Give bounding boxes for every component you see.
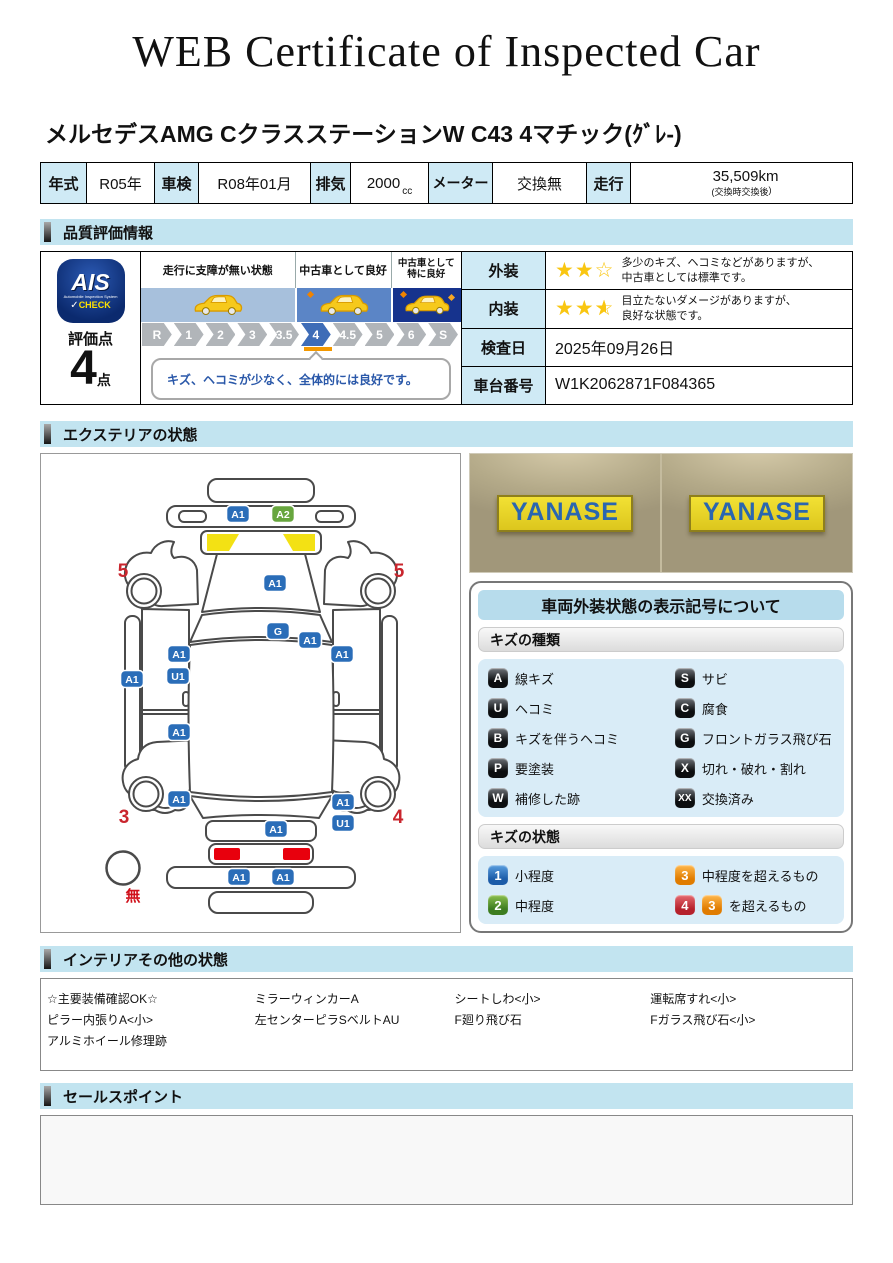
interior-condition-item: 運転席すれ<小> bbox=[650, 990, 846, 1007]
panel-number: 3 bbox=[119, 807, 130, 828]
legend-kind-label: 腐食 bbox=[702, 699, 728, 718]
exterior-rating: ★★☆ 多少のキズ、ヘコミなどがありますが、 中古車としては標準です。 bbox=[546, 252, 852, 289]
legend-kind-label: 切れ・破れ・割れ bbox=[702, 759, 806, 778]
legend-kind-label: サビ bbox=[702, 669, 728, 688]
legend-kinds-grid: A線キズSサビUヘコミC腐食Bキズを伴うヘコミGフロントガラス飛び石P要塗装X切… bbox=[478, 659, 844, 817]
legend-kind-item: P要塗装 bbox=[488, 758, 675, 778]
ais-check-label: ✓CHECK bbox=[70, 300, 110, 311]
legend-kind-item: Bキズを伴うヘコミ bbox=[488, 728, 675, 748]
svg-text:A1: A1 bbox=[303, 635, 317, 647]
ais-logo: AIS Automobile Inspection System ✓CHECK bbox=[57, 259, 125, 323]
svg-text:A2: A2 bbox=[276, 509, 290, 521]
damage-code-badge: B bbox=[488, 728, 508, 748]
ais-check-text: CHECK bbox=[79, 300, 111, 310]
svg-text:U1: U1 bbox=[171, 671, 185, 683]
table-row: 検査日 2025年09月26日 bbox=[462, 329, 852, 367]
legend-kinds-header: キズの種類 bbox=[478, 627, 844, 652]
photo-right: YANASE bbox=[660, 454, 852, 572]
legend-kind-item: Gフロントガラス飛び石 bbox=[675, 728, 834, 748]
photo-left: YANASE bbox=[470, 454, 660, 572]
svg-text:A1: A1 bbox=[269, 824, 283, 836]
legend-kind-item: Sサビ bbox=[675, 668, 834, 688]
zone-label-2: 中古車として良好 bbox=[295, 252, 391, 288]
car-icon bbox=[403, 294, 451, 316]
band-zone-2 bbox=[295, 288, 391, 322]
exterior-body: A1A2A1GA1A1U1A1A1A1A1A1U1A1A1A15534無 YAN… bbox=[40, 453, 853, 933]
interior-condition-item: ミラーウィンカーA bbox=[255, 990, 455, 1007]
legend-state-label: 小程度 bbox=[515, 866, 554, 885]
certificate-page: WEB Certificate of Inspected Car メルセデスAM… bbox=[0, 0, 893, 1263]
panel-number: 4 bbox=[393, 807, 404, 828]
interior-text-line1: 目立たないダメージがありますが、 bbox=[621, 295, 796, 307]
vin-label: 車台番号 bbox=[462, 367, 546, 404]
table-row: 車台番号 W1K2062871F084365 bbox=[462, 367, 852, 404]
damage-mark-A1: A1 bbox=[264, 575, 287, 592]
svg-text:A1: A1 bbox=[172, 794, 186, 806]
damage-mark-A1: A1 bbox=[121, 671, 144, 688]
legend-kind-label: フロントガラス飛び石 bbox=[702, 729, 832, 748]
scale-step-3: 3 bbox=[237, 323, 267, 346]
legend-kind-label: 要塗装 bbox=[515, 759, 554, 778]
legend-title: 車両外装状態の表示記号について bbox=[478, 590, 844, 620]
exterior-text-line1: 多少のキズ、ヘコミなどがありますが、 bbox=[621, 257, 819, 269]
mileage-note-open: (交換時 bbox=[711, 185, 741, 198]
svg-text:A1: A1 bbox=[335, 649, 349, 661]
section-header-exterior: エクステリアの状態 bbox=[40, 421, 853, 447]
band-zone-1 bbox=[141, 288, 295, 322]
interior-condition-item: シートしわ<小> bbox=[454, 990, 650, 1007]
damage-mark-A1: A1 bbox=[299, 632, 322, 649]
interior-condition-item: 左センターピラSベルトAU bbox=[255, 1011, 455, 1028]
zone-label-3: 中古車として特に良好 bbox=[391, 252, 461, 288]
exterior-rating-text: 多少のキズ、ヘコミなどがありますが、 中古車としては標準です。 bbox=[621, 256, 819, 286]
legend-kind-item: A線キズ bbox=[488, 668, 675, 688]
interior-text-line2: 良好な状態です。 bbox=[621, 310, 708, 322]
interior-stars: ★★☆★ bbox=[555, 296, 614, 321]
section-header-sales: セールスポイント bbox=[40, 1083, 853, 1109]
legend-kind-item: W補修した跡 bbox=[488, 788, 675, 808]
legend-state-item: 2中程度 bbox=[488, 895, 675, 915]
inspection-date-value: 2025年09月26日 bbox=[546, 329, 852, 366]
mileage-note-mid: 交換後 bbox=[741, 185, 768, 198]
svg-text:A1: A1 bbox=[268, 578, 282, 590]
legend-kind-item: XX交換済み bbox=[675, 788, 834, 808]
car-icon bbox=[192, 293, 244, 317]
svg-text:A1: A1 bbox=[276, 872, 290, 884]
legend-kind-item: Uヘコミ bbox=[488, 698, 675, 718]
inspection-date-label: 検査日 bbox=[462, 329, 546, 366]
svg-text:A1: A1 bbox=[336, 797, 350, 809]
damage-code-badge: P bbox=[488, 758, 508, 778]
zone-labels: 走行に支障が無い状態 中古車として良好 中古車として特に良好 bbox=[141, 252, 461, 288]
severity-badge: 3 bbox=[702, 895, 722, 915]
displacement-number: 2000 bbox=[367, 175, 400, 192]
spare-tire-label: 無 bbox=[125, 887, 140, 905]
legend-states-header: キズの状態 bbox=[478, 824, 844, 849]
scale-step-6: 6 bbox=[396, 323, 426, 346]
legend-kind-label: 交換済み bbox=[702, 789, 754, 808]
damage-mark-A1: A1 bbox=[168, 646, 191, 663]
car-icon bbox=[318, 293, 370, 317]
scale-step-4.5: 4.5 bbox=[333, 323, 363, 346]
mileage-note-close: ) bbox=[769, 185, 772, 198]
svg-text:A1: A1 bbox=[125, 674, 139, 686]
damage-mark-A1: A1 bbox=[272, 869, 295, 886]
svg-text:A1: A1 bbox=[172, 727, 186, 739]
severity-badge: 4 bbox=[675, 895, 695, 915]
table-row: 内装 ★★☆★ 目立たないダメージがありますが、 良好な状態です。 bbox=[462, 290, 852, 328]
legend-state-item: 43を超えるもの bbox=[675, 895, 834, 915]
spec-table: 年式 R05年 車検 R08年01月 排気 2000 cc メーター 交換無 走… bbox=[40, 162, 853, 204]
legend-state-label: 中程度を超えるもの bbox=[702, 866, 819, 885]
evaluation-comment: キズ、ヘコミが少なく、全体的には良好です。 bbox=[151, 358, 451, 400]
damage-code-badge: G bbox=[675, 728, 695, 748]
interior-condition-item: F廻り飛び石 bbox=[454, 1011, 650, 1028]
legend-state-label: 中程度 bbox=[515, 896, 554, 915]
rating-scale-cell: 走行に支障が無い状態 中古車として良好 中古車として特に良好 R1233.544 bbox=[141, 252, 462, 404]
spec-displacement-value: 2000 cc bbox=[351, 163, 429, 203]
damage-mark-G: G bbox=[267, 623, 290, 640]
scale-step-S: S bbox=[428, 323, 458, 346]
car-damage-diagram: A1A2A1GA1A1U1A1A1A1A1A1U1A1A1A15534無 bbox=[40, 453, 461, 933]
damage-code-badge: X bbox=[675, 758, 695, 778]
damage-code-badge: S bbox=[675, 668, 695, 688]
spec-year-label: 年式 bbox=[41, 163, 87, 203]
panel-number: 5 bbox=[394, 561, 405, 582]
damage-code-badge: A bbox=[488, 668, 508, 688]
legend-state-item: 1小程度 bbox=[488, 865, 675, 885]
sales-point-box bbox=[40, 1115, 853, 1205]
interior-label: 内装 bbox=[462, 290, 546, 327]
spec-year-value: R05年 bbox=[87, 163, 155, 203]
spec-mileage-label: 走行 bbox=[587, 163, 631, 203]
vin-value: W1K2062871F084365 bbox=[546, 367, 852, 404]
band-zone-3 bbox=[391, 288, 461, 322]
scale-step-R: R bbox=[142, 323, 172, 346]
exterior-stars: ★★☆ bbox=[555, 258, 614, 283]
spec-displacement-label: 排気 bbox=[311, 163, 351, 203]
dealer-sign: YANASE bbox=[497, 495, 633, 532]
damage-mark-U1: U1 bbox=[332, 815, 355, 832]
damage-mark-A1: A1 bbox=[265, 821, 288, 838]
legend-kind-label: ヘコミ bbox=[515, 699, 554, 718]
car-outline bbox=[107, 479, 400, 913]
interior-condition-item: ☆主要装備確認OK☆ bbox=[47, 990, 255, 1007]
interior-rating: ★★☆★ 目立たないダメージがありますが、 良好な状態です。 bbox=[546, 290, 852, 327]
svg-text:G: G bbox=[274, 626, 282, 638]
legend-kind-label: 補修した跡 bbox=[515, 789, 580, 808]
vehicle-photo: YANASE YANASE bbox=[469, 453, 853, 573]
page-title: WEB Certificate of Inspected Car bbox=[0, 26, 893, 77]
panel-number: 5 bbox=[118, 561, 129, 582]
exterior-label: 外装 bbox=[462, 252, 546, 289]
interior-condition-item: ピラー内張りA<小> bbox=[47, 1011, 255, 1028]
interior-condition-item: アルミホイール修理跡 bbox=[47, 1032, 255, 1049]
damage-code-badge: C bbox=[675, 698, 695, 718]
damage-mark-A1: A1 bbox=[227, 506, 250, 523]
rating-band bbox=[141, 288, 461, 322]
dealer-sign: YANASE bbox=[689, 495, 825, 532]
damage-code-badge: XX bbox=[675, 788, 695, 808]
severity-badge: 2 bbox=[488, 895, 508, 915]
check-icon: ✓ bbox=[70, 300, 78, 311]
damage-mark-A1: A1 bbox=[168, 791, 191, 808]
damage-mark-U1: U1 bbox=[167, 668, 190, 685]
spec-meter-value: 交換無 bbox=[493, 163, 587, 203]
damage-mark-A1: A1 bbox=[168, 724, 191, 741]
legend-kind-label: 線キズ bbox=[515, 669, 554, 688]
damage-mark-A1: A1 bbox=[228, 869, 251, 886]
ais-logo-text: AIS bbox=[71, 271, 109, 294]
evaluation-table: AIS Automobile Inspection System ✓CHECK … bbox=[40, 251, 853, 405]
legend-kind-item: C腐食 bbox=[675, 698, 834, 718]
section-header-quality: 品質評価情報 bbox=[40, 219, 853, 245]
svg-text:A1: A1 bbox=[172, 649, 186, 661]
scale-step-4: 4 bbox=[301, 323, 331, 346]
legend-kind-item: X切れ・破れ・割れ bbox=[675, 758, 834, 778]
interior-condition-box: ☆主要装備確認OK☆ミラーウィンカーAシートしわ<小>運転席すれ<小>ピラー内張… bbox=[40, 978, 853, 1071]
exterior-right-column: YANASE YANASE 車両外装状態の表示記号について キズの種類 A線キズ… bbox=[469, 453, 853, 933]
severity-badge: 1 bbox=[488, 865, 508, 885]
scale-step-1: 1 bbox=[174, 323, 204, 346]
rating-scale: R1233.544.556S bbox=[141, 323, 461, 346]
car-name: メルセデスAMG CクラスステーションW C43 4マチック(ｸﾞﾚ-) bbox=[45, 115, 853, 149]
svg-text:A1: A1 bbox=[231, 509, 245, 521]
selected-marker bbox=[304, 347, 332, 351]
damage-mark-A1: A1 bbox=[332, 794, 355, 811]
score: 4 点 bbox=[70, 349, 111, 390]
scale-step-2: 2 bbox=[206, 323, 236, 346]
legend-states-grid: 1小程度3中程度を超えるもの2中程度43を超えるもの bbox=[478, 856, 844, 924]
evaluation-detail-table: 外装 ★★☆ 多少のキズ、ヘコミなどがありますが、 中古車としては標準です。 内… bbox=[462, 252, 852, 404]
mileage-note: (交換時 交換後 ) bbox=[709, 185, 773, 198]
scale-step-5: 5 bbox=[365, 323, 395, 346]
legend-kind-label: キズを伴うヘコミ bbox=[515, 729, 619, 748]
score-value: 4 bbox=[70, 349, 97, 390]
svg-text:U1: U1 bbox=[336, 818, 350, 830]
damage-mark-A1: A1 bbox=[331, 646, 354, 663]
damage-code-badge: U bbox=[488, 698, 508, 718]
table-row: 外装 ★★☆ 多少のキズ、ヘコミなどがありますが、 中古車としては標準です。 bbox=[462, 252, 852, 290]
severity-badge: 3 bbox=[675, 865, 695, 885]
scale-step-3.5: 3.5 bbox=[269, 323, 299, 346]
displacement-unit: cc bbox=[400, 174, 412, 203]
section-header-interior: インテリアその他の状態 bbox=[40, 946, 853, 972]
interior-condition-item: Fガラス飛び石<小> bbox=[650, 1011, 846, 1028]
svg-text:A1: A1 bbox=[232, 872, 246, 884]
mileage-number: 35,509km bbox=[705, 168, 779, 185]
zone-label-1: 走行に支障が無い状態 bbox=[141, 252, 295, 288]
damage-legend: 車両外装状態の表示記号について キズの種類 A線キズSサビUヘコミC腐食Bキズを… bbox=[469, 581, 853, 933]
spec-meter-label: メーター bbox=[429, 163, 493, 203]
damage-mark-A2: A2 bbox=[272, 506, 295, 523]
ais-score-cell: AIS Automobile Inspection System ✓CHECK … bbox=[41, 252, 141, 404]
spec-shaken-label: 車検 bbox=[155, 163, 199, 203]
legend-state-item: 3中程度を超えるもの bbox=[675, 865, 834, 885]
legend-state-label: を超えるもの bbox=[729, 896, 807, 915]
spec-mileage-value: 35,509km (交換時 交換後 ) bbox=[631, 163, 852, 203]
exterior-text-line2: 中古車としては標準です。 bbox=[621, 272, 751, 284]
score-unit: 点 bbox=[97, 375, 111, 390]
spec-shaken-value: R08年01月 bbox=[199, 163, 311, 203]
interior-rating-text: 目立たないダメージがありますが、 良好な状態です。 bbox=[621, 294, 796, 324]
damage-code-badge: W bbox=[488, 788, 508, 808]
